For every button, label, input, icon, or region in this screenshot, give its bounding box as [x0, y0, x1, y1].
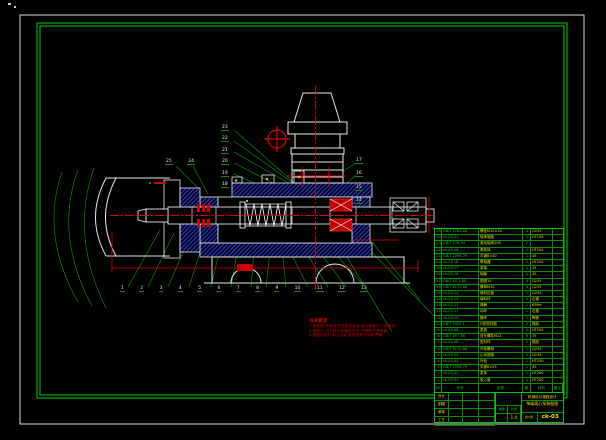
signature-cell [479, 417, 495, 424]
signature-row: 制图 [435, 401, 495, 409]
part-callout: 25 [165, 159, 173, 165]
signature-cell [479, 409, 495, 416]
bom-cell-name: 密封环 [479, 340, 523, 345]
bom-cell-name: 平键8×40 [479, 254, 523, 259]
signature-row: 设计 [435, 393, 495, 401]
signature-cell [463, 417, 479, 424]
bom-cell-material: HT200 [531, 371, 553, 376]
signature-cell [479, 401, 495, 408]
signature-label: 设计 [435, 393, 449, 400]
bom-cell-no: 20 [435, 260, 442, 265]
part-callout: 3 [159, 286, 164, 292]
bom-cell-material: 石棉 [531, 297, 553, 302]
signature-cell [449, 417, 463, 424]
bom-cell-name: 弹簧 [479, 303, 523, 308]
bom-cell-no: 25 [435, 229, 442, 234]
bom-cell-code: ck-03-08 [442, 328, 479, 333]
scale-weight-values: 1:4 [496, 414, 521, 422]
bom-cell-no: 14 [435, 297, 442, 302]
bom-cell-remark [553, 272, 563, 277]
bom-cell-qty: 1 [523, 254, 531, 259]
bom-cell-remark [553, 229, 563, 234]
part-callout: 8 [255, 286, 260, 292]
drawing-number: ck-03 [538, 413, 563, 422]
bom-cell-no: 18 [435, 272, 442, 277]
bom-cell-no: 19 [435, 266, 442, 271]
bom-cell-qty: 6 [523, 334, 531, 339]
part-callout: 24 [187, 159, 195, 165]
bom-rows: 25 GB/T 5783-86 螺栓M10×35 4 Q235 24 ck-03… [435, 229, 563, 384]
bom-cell-qty: 1 [523, 378, 531, 383]
bom-cell-name: 垫圈10 [479, 279, 523, 284]
bom-cell-material: 65Mn [531, 303, 553, 308]
part-callout: 9 [274, 286, 279, 292]
scale-weight-labels: 重量 比例 [496, 406, 521, 414]
callouts-bottom-row: 12345678910111213 [120, 286, 368, 292]
scale-weight-cells: 重量 比例 1:4 [496, 393, 522, 422]
bom-cell-remark [553, 309, 563, 314]
school-name: 机械设计课程设计 [522, 393, 563, 401]
signature-label: 制图 [435, 401, 449, 408]
bom-cell-material: Q235 [531, 353, 553, 358]
bom-cell-name: 填料压盖 [479, 291, 523, 296]
bom-cell-qty: 1 [523, 291, 531, 296]
bom-cell-qty: 4 [523, 279, 531, 284]
bom-cell-code: ck-03-13 [442, 297, 479, 302]
callouts-left-pair: 2524 [165, 159, 195, 165]
bom-cell-qty: 2 [523, 241, 531, 246]
part-callout: 18 [221, 182, 229, 188]
bom-cell-remark [553, 365, 563, 370]
part-callout: 15 [355, 185, 363, 191]
bom-cell-no: 2 [435, 371, 442, 376]
part-callout: 2 [139, 286, 144, 292]
bom-cell-name: O形密封圈 [479, 322, 523, 327]
bom-cell-name: 泵轴 [479, 266, 523, 271]
part-callout: 12 [338, 286, 346, 292]
bom-cell-name: 泵盖 [479, 328, 523, 333]
bom-cell-no: 21 [435, 254, 442, 259]
bom-cell-code: ck-03-10 [442, 316, 479, 321]
drawing-title: 单级离心泵装配图 [522, 401, 563, 413]
bom-cell-code: ck-03-01 [442, 378, 479, 383]
part-callout: 6 [216, 286, 221, 292]
part-callout: 20 [221, 159, 229, 165]
bom-cell-qty: 1 [523, 359, 531, 364]
bom-cell-code: ck-03-14 [442, 291, 479, 296]
bom-cell-name: 联轴器 [479, 260, 523, 265]
bom-cell-no: 13 [435, 303, 442, 308]
bom-cell-qty: 1 [523, 371, 531, 376]
bom-cell-name: 螺栓M10×35 [479, 229, 523, 234]
bom-cell-material: 石墨 [531, 309, 553, 314]
signature-cell [463, 401, 479, 408]
bom-cell-no: 23 [435, 241, 442, 246]
bom-cell-qty: 2 [523, 340, 531, 345]
bom-cell-material: 35 [531, 334, 553, 339]
bom-cell-code: ck-03-18 [442, 260, 479, 265]
bom-cell-name: 螺母M10 [479, 285, 523, 290]
bom-cell-no: 11 [435, 316, 442, 321]
bom-cell-code: ck-03-06 [442, 340, 479, 345]
bom-cell-material: 45 [531, 272, 553, 277]
bom-cell-material: 45 [531, 365, 553, 370]
signature-row: 工艺 [435, 417, 495, 425]
bom-cell-no: 1 [435, 378, 442, 383]
bom-cell-material: 橡胶 [531, 322, 553, 327]
base-supports [204, 257, 410, 283]
bom-cell-remark [553, 378, 563, 383]
scale-label: 比例 [508, 406, 520, 413]
bom-cell-remark [553, 279, 563, 284]
bom-cell-remark [553, 371, 563, 376]
sheet-count: 共1张 [522, 413, 538, 422]
bom-cell-code: ck-03-12 [442, 303, 479, 308]
bom-cell-code: ck-03-04 [442, 359, 479, 364]
bom-cell-no: 7 [435, 340, 442, 345]
bom-header-cell: 代号 [442, 384, 479, 392]
signature-label: 审核 [435, 409, 449, 416]
bom-cell-name: 泵体 [479, 371, 523, 376]
signature-cell [479, 393, 495, 400]
bom-cell-remark [553, 359, 563, 364]
notes-lines: 1.装配前,所有零件用煤油清洗,滚动轴承用汽油清洗;2.装配后,用手转动泵轴应灵… [309, 324, 427, 338]
title-block-bottom: 共1张 ck-03 [522, 413, 563, 422]
cad-drawing-screen: 12345678910111213 232221201918 2524 1716… [0, 0, 606, 440]
bom-cell-code: ck-03-19 [442, 248, 479, 253]
bom-cell-name: 平键6×25 [479, 365, 523, 370]
bom-cell-name: 动环 [479, 309, 523, 314]
part-callout: 7 [236, 286, 241, 292]
part-callout: 21 [221, 148, 229, 154]
bom-header-cell: 材料 [531, 384, 553, 392]
part-callout: 19 [221, 171, 229, 177]
bom-cell-material: HT200 [531, 260, 553, 265]
bom-cell-remark [553, 322, 563, 327]
bom-cell-remark [553, 328, 563, 333]
bom-header-cell: 名称 [479, 384, 523, 392]
weight-label: 重量 [496, 406, 508, 413]
section-symbol [264, 126, 290, 152]
title-block: 设计 制图 审核 [435, 393, 563, 422]
bom-cell-name: 吸入管 [479, 378, 523, 383]
part-callout: 11 [316, 286, 324, 292]
bom-header-cell: 序号 [435, 384, 442, 392]
bom-cell-code: GB/T 5783-86 [442, 229, 479, 234]
bom-cell-code: ck-03-05 [442, 353, 479, 358]
bom-cell-material: 45 [531, 266, 553, 271]
bom-cell-qty: 1 [523, 316, 531, 321]
bom-table: 25 GB/T 5783-86 螺栓M10×35 4 Q235 24 ck-03… [434, 228, 564, 423]
part-callout: 5 [197, 286, 202, 292]
bom-cell-qty: 1 [523, 272, 531, 277]
bom-cell-code: GB/T 6170-86 [442, 285, 479, 290]
bom-cell-remark [553, 254, 563, 259]
part-callout: 22 [221, 136, 229, 142]
bom-cell-qty: 2 [523, 322, 531, 327]
bom-header-row: 序号代号名称数量材料备注 [435, 384, 563, 393]
bom-cell-code: ck-03-11 [442, 309, 479, 314]
bom-cell-name: 静环 [479, 316, 523, 321]
bom-cell-no: 12 [435, 309, 442, 314]
bom-cell-name: 叶轮 [479, 359, 523, 364]
bom-cell-code: GB/T 897-86 [442, 334, 479, 339]
bom-cell-material: Q235 [531, 285, 553, 290]
bom-cell-material: 45 [531, 254, 553, 259]
bom-cell-name: 填料环 [479, 297, 523, 302]
bom-cell-qty: 1 [523, 347, 531, 352]
bom-cell-name: 滚动轴承208 [479, 241, 523, 246]
bom-cell-code: ck-03-17 [442, 266, 479, 271]
bom-cell-remark [553, 334, 563, 339]
bom-header-cell: 备注 [553, 384, 563, 392]
bom-cell-remark [553, 241, 563, 246]
bom-cell-qty: 1 [523, 260, 531, 265]
bom-cell-no: 3 [435, 365, 442, 370]
bom-cell-no: 8 [435, 334, 442, 339]
bom-cell-no: 16 [435, 285, 442, 290]
part-callout: 10 [294, 286, 302, 292]
signature-cell [449, 409, 463, 416]
bom-cell-remark [553, 248, 563, 253]
bom-cell-material: Q235 [531, 291, 553, 296]
part-callout: 23 [221, 125, 229, 131]
bom-cell-name: 轴承端盖 [479, 235, 523, 240]
signature-cell [463, 409, 479, 416]
bom-cell-code: GB/T 276-94 [442, 241, 479, 246]
bom-cell-material: HT200 [531, 378, 553, 383]
bom-cell-code: ck-03-16 [442, 272, 479, 277]
bom-cell-qty: 4 [523, 229, 531, 234]
bom-cell-name: 叶轮螺母 [479, 347, 523, 352]
bom-cell-name: 悬架体 [479, 248, 523, 253]
bom-cell-code: GB/T 1096-79 [442, 365, 479, 370]
bom-cell-no: 10 [435, 322, 442, 327]
bom-cell-code: GB/T 6170-86 [442, 347, 479, 352]
signature-cell [449, 393, 463, 400]
signature-cell [449, 401, 463, 408]
part-callout: 1 [120, 286, 125, 292]
bom-cell-remark [553, 353, 563, 358]
bom-cell-material: HT150 [531, 359, 553, 364]
bom-cell-code: GB/T 1096-79 [442, 254, 479, 259]
bom-cell-remark [553, 303, 563, 308]
signature-cell [463, 393, 479, 400]
title-block-right: 机械设计课程设计 单级离心泵装配图 共1张 ck-03 [522, 393, 563, 422]
part-callout: 13 [360, 286, 368, 292]
bom-cell-remark [553, 340, 563, 345]
bom-cell-qty: 1 [523, 266, 531, 271]
part-callout: 14 [355, 198, 363, 204]
bom-cell-qty: 1 [523, 235, 531, 240]
bom-cell-material: HT200 [531, 248, 553, 253]
bom-cell-code: ck-03-21 [442, 235, 479, 240]
bom-cell-qty: 1 [523, 309, 531, 314]
bom-cell-qty: 4 [523, 285, 531, 290]
bom-cell-no: 6 [435, 347, 442, 352]
bom-cell-no: 9 [435, 328, 442, 333]
bom-cell-no: 4 [435, 359, 442, 364]
bom-cell-remark [553, 235, 563, 240]
bom-cell-qty: 1 [523, 328, 531, 333]
technical-notes: 技术要求 1.装配前,所有零件用煤油清洗,滚动轴承用汽油清洗;2.装配后,用手转… [309, 319, 427, 338]
bom-cell-material: Q235 [531, 347, 553, 352]
bom-cell-material: Q235 [531, 229, 553, 234]
bom-cell-remark [553, 291, 563, 296]
bom-cell-remark [553, 260, 563, 265]
stage-mark-cell [496, 393, 521, 406]
part-callout: 4 [178, 286, 183, 292]
bom-cell-qty: 1 [523, 353, 531, 358]
bom-cell-code: ck-03-02 [442, 371, 479, 376]
part-callout: 17 [355, 158, 363, 164]
bom-cell-remark [553, 285, 563, 290]
bom-cell-no: 22 [435, 248, 442, 253]
bom-cell-material: Q235 [531, 279, 553, 284]
callouts-mid-column: 232221201918 [221, 125, 229, 188]
bom-cell-material: 橡胶 [531, 340, 553, 345]
signature-grid: 设计 制图 审核 [435, 393, 496, 422]
bom-cell-remark [553, 297, 563, 302]
bom-header-cell: 数量 [523, 384, 531, 392]
callouts-right-column: 17161514 [355, 158, 363, 204]
bom-cell-name: 双头螺柱M12 [479, 334, 523, 339]
bom-cell-material: HT200 [531, 328, 553, 333]
signature-label: 工艺 [435, 417, 449, 424]
corner-specks [8, 3, 16, 8]
scale-value: 1:4 [508, 414, 520, 422]
bom-cell-material [531, 241, 553, 246]
discharge-stack [288, 93, 347, 183]
signature-row: 审核 [435, 409, 495, 417]
bom-cell-qty: 1 [523, 248, 531, 253]
part-callout: 16 [355, 171, 363, 177]
bom-cell-qty: 1 [523, 297, 531, 302]
green-dot [149, 182, 151, 184]
bom-cell-no: 24 [435, 235, 442, 240]
weight-value [496, 414, 508, 422]
bom-cell-material: HT150 [531, 235, 553, 240]
bom-cell-name: 轴套 [479, 272, 523, 277]
bom-cell-no: 17 [435, 279, 442, 284]
bom-cell-remark [553, 266, 563, 271]
bom-cell-qty: 1 [523, 365, 531, 370]
bom-cell-no: 15 [435, 291, 442, 296]
bom-cell-code: GB/T 97.1-85 [442, 279, 479, 284]
bom-cell-remark [553, 316, 563, 321]
note-line: 3.装配后进行水压试验,各密封处不得有渗漏. [309, 333, 427, 338]
bom-cell-remark [553, 347, 563, 352]
bom-cell-name: 止动垫圈 [479, 353, 523, 358]
bom-cell-code: GB/T 3452.1 [442, 322, 479, 327]
bom-cell-qty: 1 [523, 303, 531, 308]
bom-cell-material: 陶瓷 [531, 316, 553, 321]
bom-cell-no: 5 [435, 353, 442, 358]
